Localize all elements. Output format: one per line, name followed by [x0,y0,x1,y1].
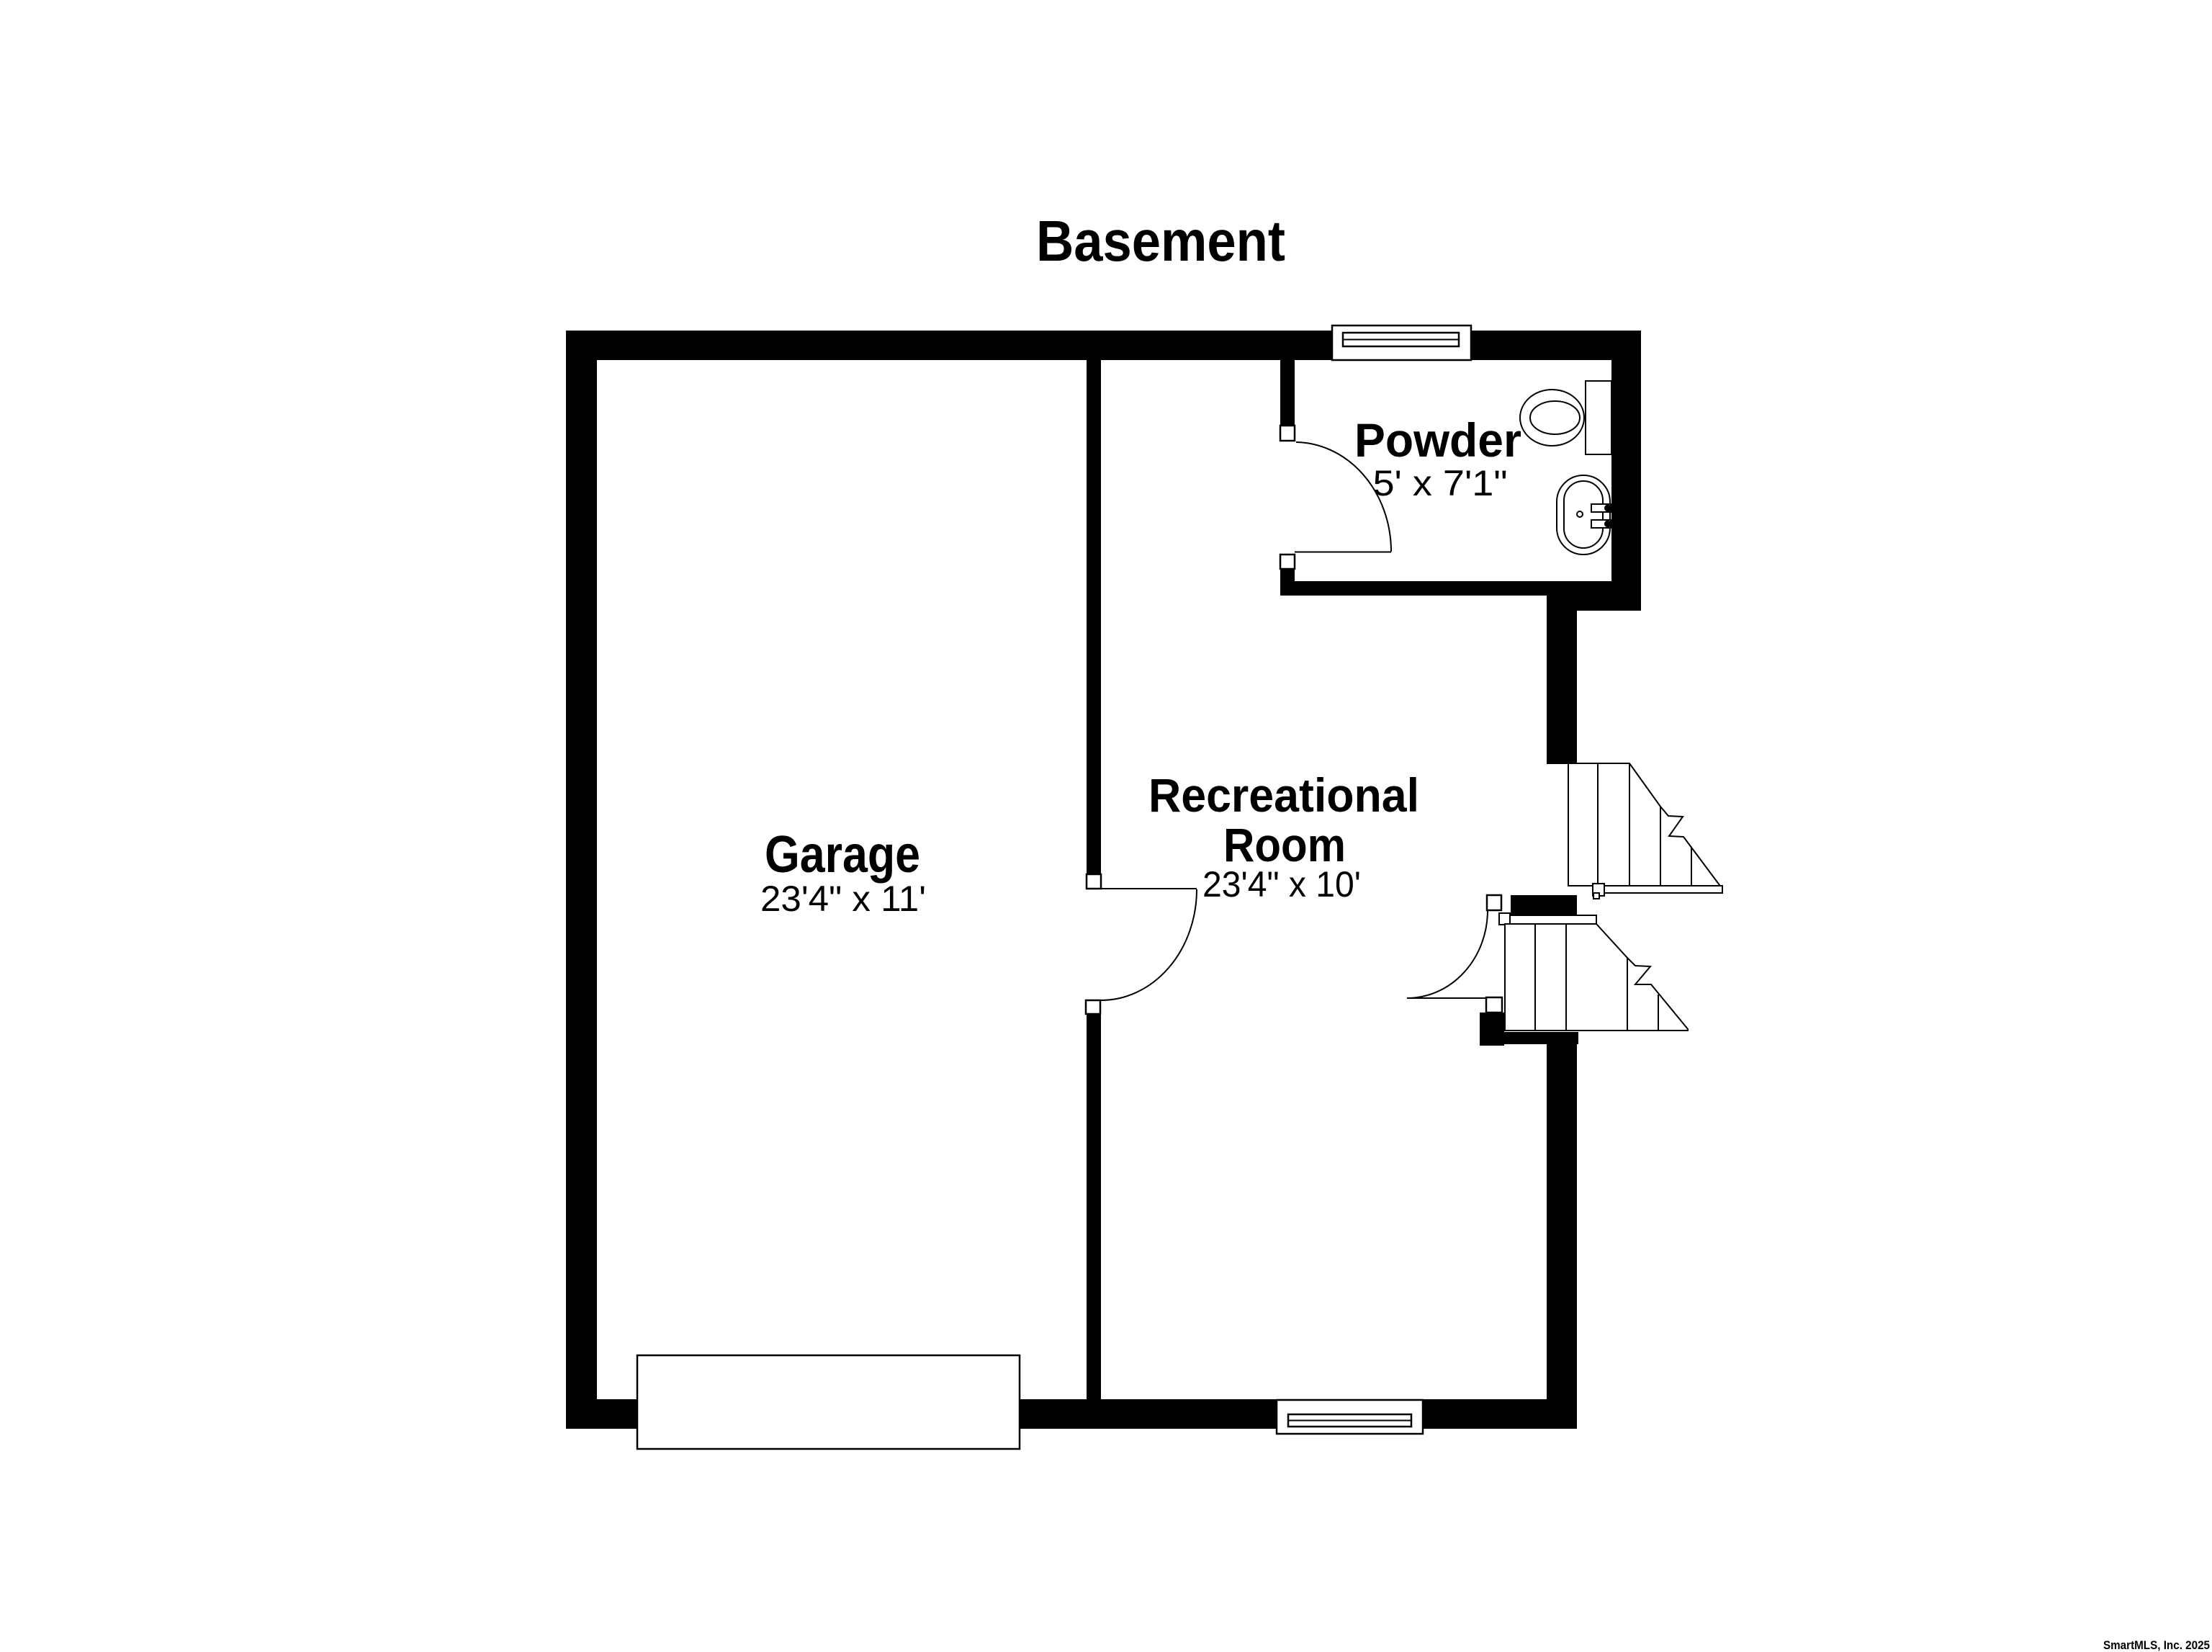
svg-text:Room: Room [1223,818,1346,871]
svg-text:Powder: Powder [1354,413,1521,467]
svg-text:SmartMLS, Inc. 2025: SmartMLS, Inc. 2025 [2103,1638,2210,1652]
svg-text:Recreational: Recreational [1148,768,1419,822]
svg-text:5' x 7'1": 5' x 7'1" [1373,463,1508,503]
svg-text:Garage: Garage [765,826,920,884]
svg-text:23'4" x 11': 23'4" x 11' [760,879,926,919]
svg-text:23'4" x 10': 23'4" x 10' [1202,864,1361,904]
svg-text:Basement: Basement [1036,209,1285,273]
